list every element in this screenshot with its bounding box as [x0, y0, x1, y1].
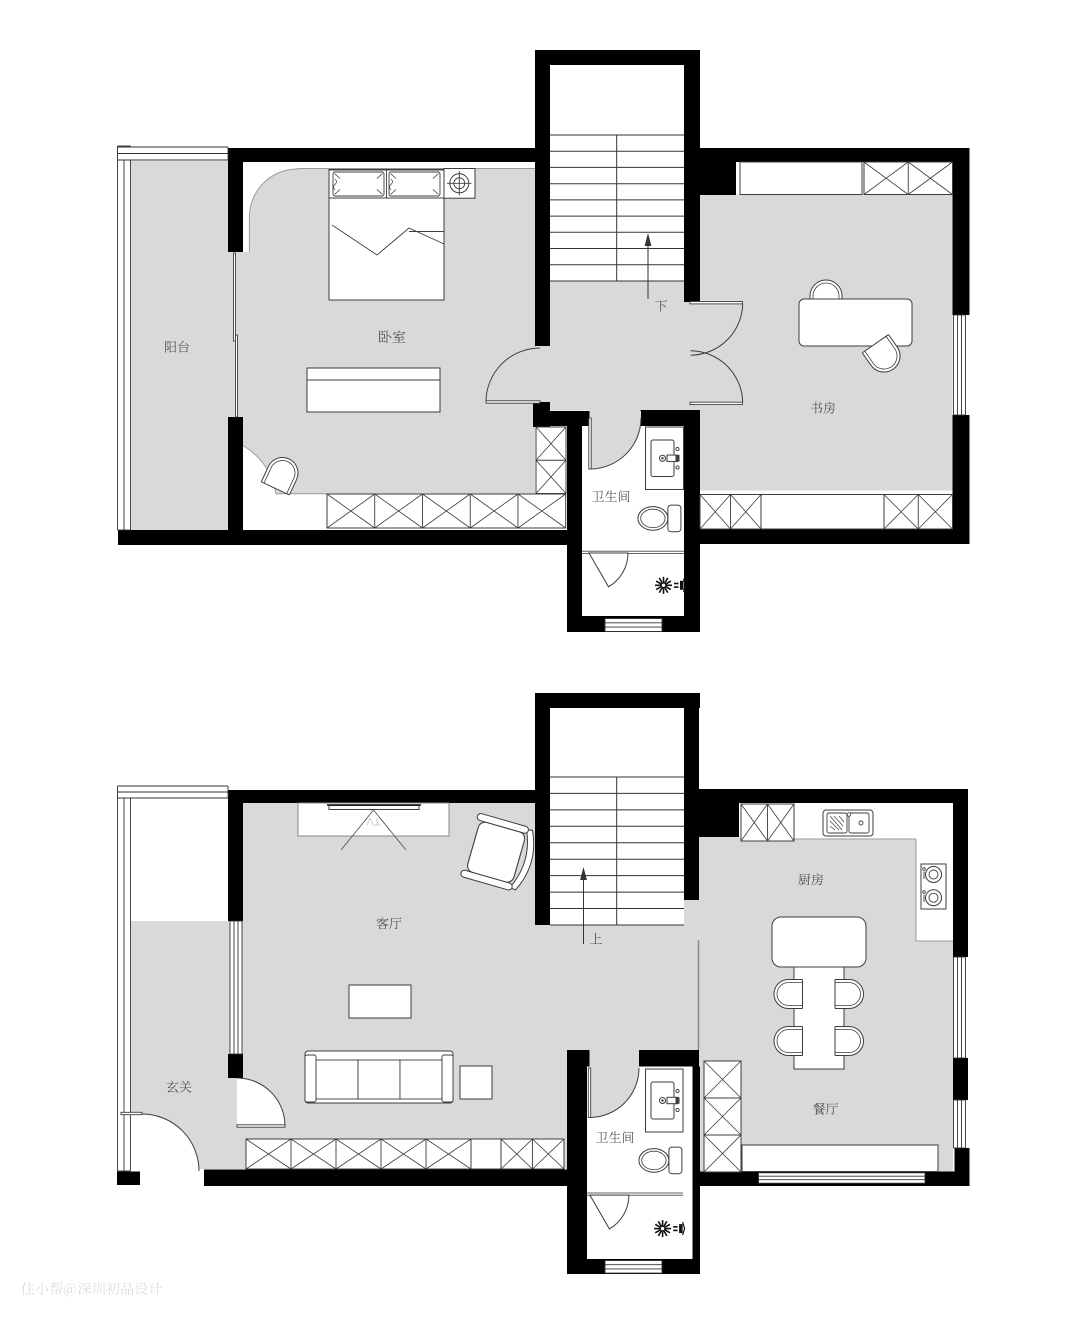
svg-text:TV: TV — [366, 815, 381, 827]
